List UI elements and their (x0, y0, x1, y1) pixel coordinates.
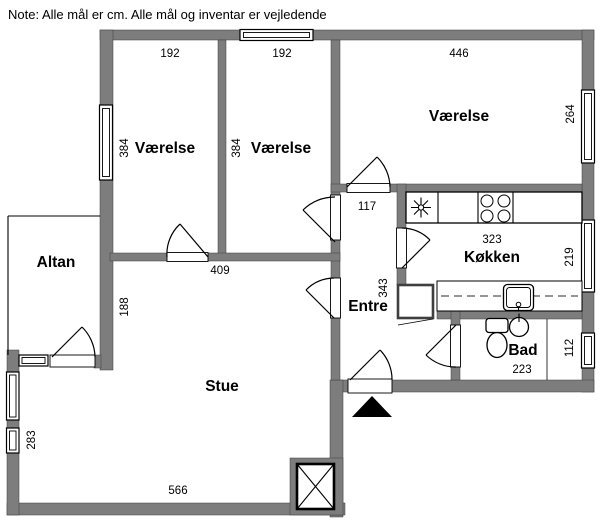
room-label-koekken: Køkken (464, 249, 520, 266)
dim-entre-depth: 343 (378, 278, 390, 297)
walls (7, 30, 594, 517)
plan-note: Note: Alle mål er cm. Alle mål og invent… (8, 7, 327, 22)
wall-vaerelse1-vaerelse2 (218, 40, 226, 256)
window-stue-left-lower-icon (7, 428, 20, 453)
door-vaerelse3-icon (347, 157, 390, 187)
kitchen-sink-icon (504, 285, 534, 312)
closet-door-line (398, 319, 433, 325)
dim-vaerelse2-width: 192 (272, 48, 291, 60)
floor-plan-page: Note: Alle mål er cm. Alle mål og invent… (0, 0, 600, 525)
entrance-arrow-icon (352, 396, 392, 417)
room-label-bad: Bad (508, 342, 537, 359)
dim-hall-width: 117 (358, 201, 376, 213)
shaft-icon (297, 464, 334, 509)
opening-bad-door (451, 325, 461, 367)
dim-altan-wall: 188 (119, 297, 131, 316)
dim-bad-depth: 112 (564, 339, 576, 357)
opening-stue-entre-door (331, 278, 341, 318)
appliance-star-icon (411, 198, 431, 218)
wall-vaerelse3-bottom (390, 184, 582, 192)
entre-closet (398, 285, 433, 325)
dim-stue-width: 566 (168, 485, 187, 497)
wall-left-upper-exterior (100, 30, 113, 370)
dim-vaerelse3-width: 446 (449, 48, 468, 60)
wall-vaerelse3-bottom-stub (331, 184, 347, 192)
kitchen-counter-top (406, 192, 582, 223)
window-top-icon (240, 30, 313, 41)
room-label-stue: Stue (205, 378, 239, 395)
opening-altan-door (50, 355, 95, 367)
dim-vaerelse1-width: 192 (160, 48, 179, 60)
window-koekken-right-icon (582, 220, 595, 292)
window-vaerelse1-left-icon (100, 105, 113, 180)
dim-stue-depth: 283 (26, 430, 38, 449)
room-label-vaerelse2: Værelse (251, 140, 312, 157)
window-bad-right-icon (582, 333, 595, 368)
room-label-vaerelse1: Værelse (135, 140, 196, 157)
window-stue-left-upper-icon (7, 372, 20, 420)
dim-stue-upper-width: 409 (210, 265, 229, 277)
wall-stue-top (110, 253, 340, 261)
dim-koekken-depth: 219 (564, 247, 576, 266)
dim-vaerelse3-depth: 264 (565, 104, 577, 124)
opening-entrance-door (348, 379, 392, 393)
dim-koekken-width: 323 (482, 234, 501, 246)
window-vaerelse3-right-icon (582, 90, 595, 163)
opening-vaerelse3-door (347, 184, 390, 193)
wall-top-exterior (100, 30, 594, 40)
door-altan-icon (52, 327, 95, 357)
altan-railing (8, 216, 100, 355)
dim-vaerelse2-depth: 384 (231, 138, 243, 158)
opening-koekken-door (397, 228, 407, 268)
opening-vaerelse2-door (331, 195, 341, 240)
window-altan-icon (19, 355, 48, 366)
toilet-icon (486, 319, 508, 358)
door-entrance-icon (350, 350, 392, 380)
room-label-entre: Entre (348, 298, 388, 315)
dim-bad-width: 223 (512, 364, 531, 376)
closet-icon (398, 285, 433, 318)
room-label-vaerelse3: Værelse (429, 108, 490, 125)
door-stue-entre-icon (306, 278, 334, 318)
floor-plan-drawing: Note: Alle mål er cm. Alle mål og invent… (0, 0, 600, 525)
room-label-altan: Altan (37, 254, 76, 271)
opening-vaerelse1-door (167, 253, 208, 262)
dim-vaerelse1-depth: 384 (119, 138, 131, 158)
